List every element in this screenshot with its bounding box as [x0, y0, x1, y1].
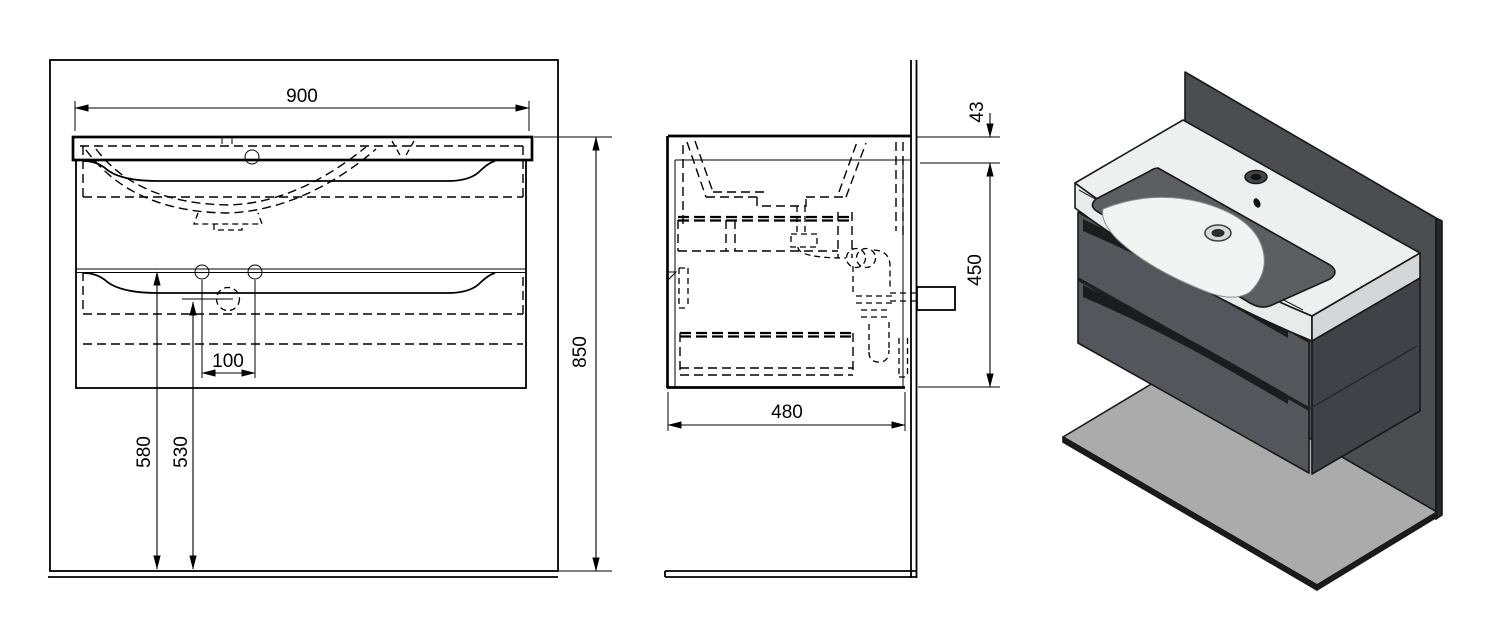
dim-530: 530	[171, 302, 193, 569]
front-drawer1-handle	[83, 161, 495, 181]
front-view: 900 100 580 530 850	[48, 60, 612, 577]
front-cabinet-body	[76, 160, 526, 388]
dim-530-label: 530	[171, 436, 192, 468]
dim-100-label: 100	[212, 351, 244, 372]
side-inner-lines	[675, 160, 911, 387]
iso-drain-hole-inner	[1212, 229, 1225, 237]
side-siphon-trap-dashed	[791, 206, 917, 377]
3d-view	[1063, 72, 1442, 590]
front-drawer1-box-dashed	[83, 146, 523, 197]
side-wall-drain-outlet	[917, 287, 955, 310]
side-wall-line	[911, 60, 917, 578]
side-drawer2-box-dashed	[680, 333, 853, 375]
front-drawer2-handle	[83, 273, 495, 293]
dim-900-label: 900	[286, 86, 318, 107]
front-faucet-hole	[245, 150, 259, 164]
side-floor-line	[665, 571, 917, 577]
iso-wall-edge	[1436, 218, 1442, 519]
vanity-technical-drawing: 900 100 580 530 850	[0, 0, 1500, 630]
front-countertop	[73, 137, 532, 160]
front-drawer-divider	[76, 269, 526, 273]
front-overflow-dashed	[392, 141, 414, 157]
technical-drawing-page: 900 100 580 530 850	[0, 0, 1500, 630]
dim-480: 480	[668, 392, 905, 431]
side-basin-section-dashed	[683, 141, 903, 237]
iso-faucet-hole-inner	[1251, 174, 1262, 180]
front-basin-drain-dashed	[194, 213, 262, 230]
dim-43: 43	[917, 101, 1000, 163]
dim-850: 850	[534, 137, 612, 571]
dim-43-label: 43	[967, 101, 988, 122]
side-drawer1-box-dashed	[678, 212, 852, 258]
dim-450: 450	[918, 163, 1000, 387]
side-front-panel-dashed	[679, 268, 688, 308]
dim-480-label: 480	[771, 402, 803, 423]
side-view: 43 450 480	[665, 60, 1000, 578]
dim-850-label: 850	[570, 336, 591, 368]
dim-100: 100	[202, 280, 255, 378]
dim-580-label: 580	[134, 436, 155, 468]
dim-580: 580	[134, 272, 157, 569]
dim-900: 900	[75, 86, 529, 131]
dim-450-label: 450	[965, 254, 986, 286]
